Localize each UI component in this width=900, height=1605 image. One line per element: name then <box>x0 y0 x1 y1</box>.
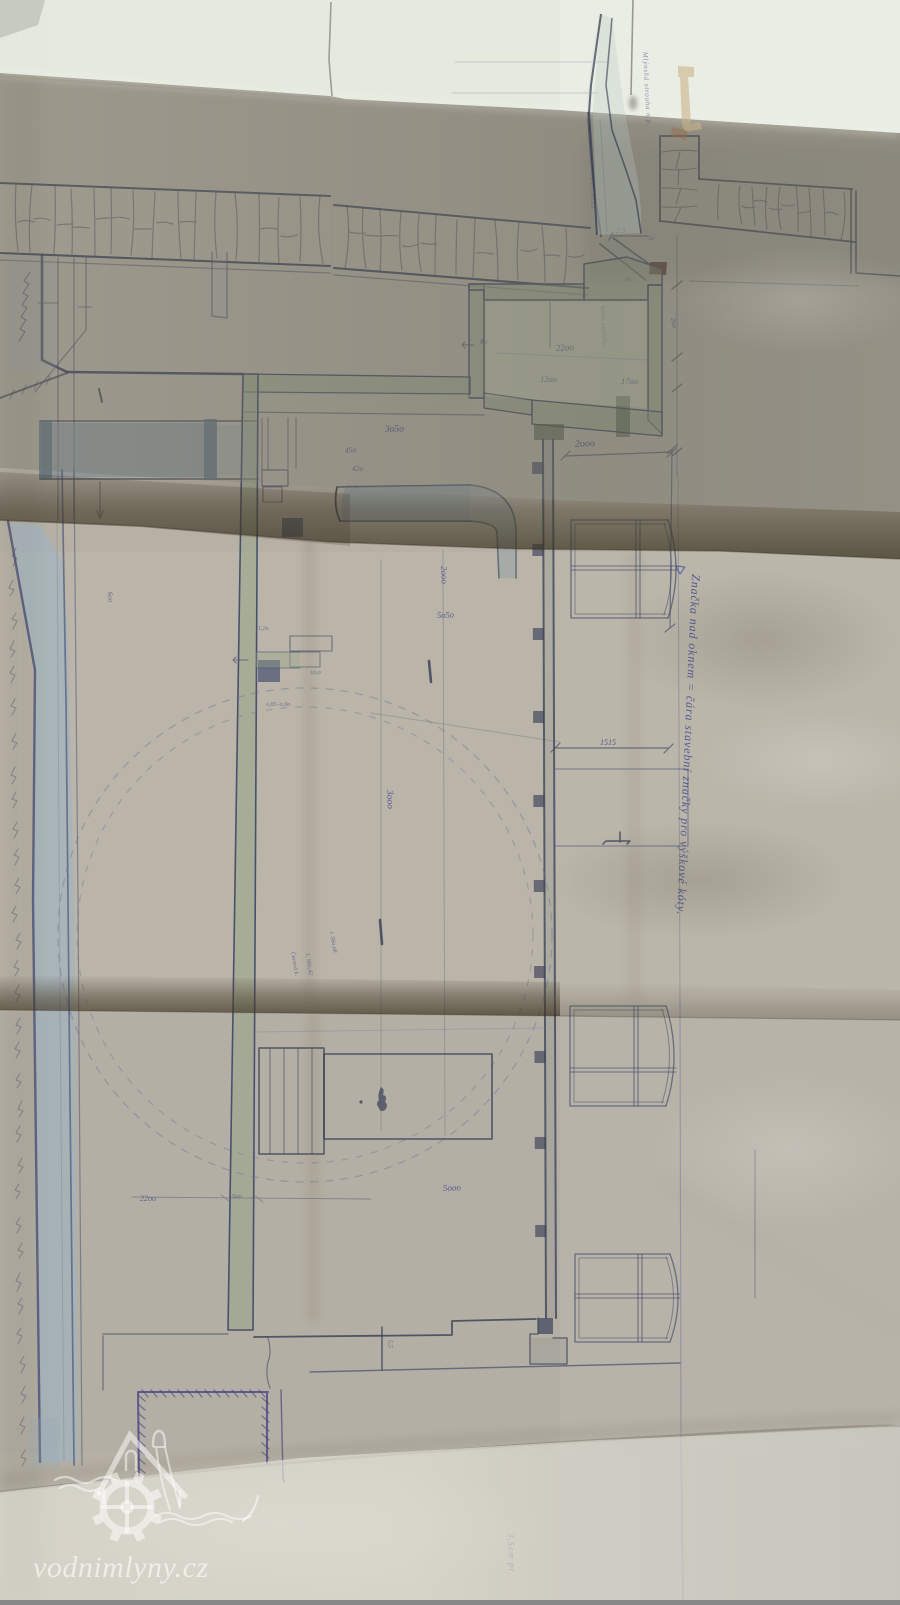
svg-text:5o5o: 5o5o <box>437 609 454 620</box>
svg-text:5ooo: 5ooo <box>443 1182 462 1193</box>
svg-text:3ooo: 3ooo <box>384 789 395 810</box>
svg-text:o,85÷o,9o: o,85÷o,9o <box>266 702 290 708</box>
svg-text:1,2o: 1,2o <box>258 626 269 632</box>
svg-text:2ooo: 2ooo <box>439 566 450 585</box>
svg-text:6oo: 6oo <box>106 592 115 603</box>
svg-text:5oo: 5oo <box>232 1193 243 1200</box>
svg-text:vodnimlyny.cz: vodnimlyny.cz <box>33 1551 209 1584</box>
svg-text:22oo: 22oo <box>140 1194 156 1203</box>
svg-text:1515: 1515 <box>600 738 616 747</box>
svg-text:5,5: 5,5 <box>386 1340 394 1349</box>
